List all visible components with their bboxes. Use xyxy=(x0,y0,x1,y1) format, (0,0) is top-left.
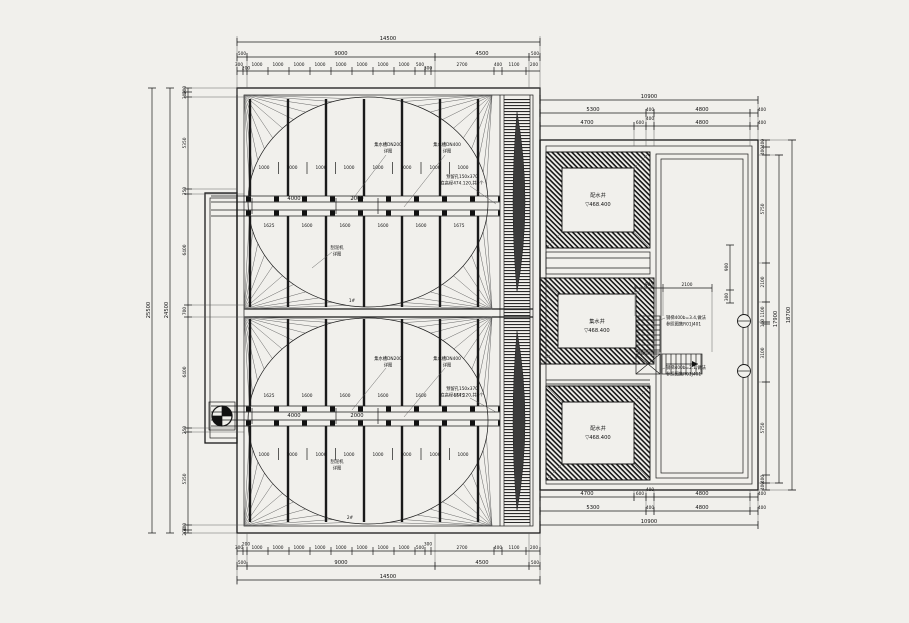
dim-label: 5750 xyxy=(760,203,766,214)
dim-label: 1600 xyxy=(302,223,313,229)
dim-label: 1000 xyxy=(316,452,327,458)
dim-label: 4000 xyxy=(287,196,300,202)
dim-label: 1000 xyxy=(294,62,305,68)
tank-tag: 2# xyxy=(347,515,354,521)
dim-label: 10900 xyxy=(641,519,658,525)
dim-label: 1000 xyxy=(401,452,412,458)
dim-label: 1000 xyxy=(287,165,298,171)
dim-label: 2100 xyxy=(682,282,693,288)
dims-right-bottom: 4700 600 400 4800 400 5300 400 4800 400 … xyxy=(540,487,766,529)
annotation: 刮泥机 xyxy=(331,458,345,465)
dims-right-side: 400 400 5750 2100 1100 100 3100 5750 400… xyxy=(758,139,796,490)
dim-label: 4500 xyxy=(475,560,488,566)
dim-label: 1000 xyxy=(430,452,441,458)
dim-label: 1600 xyxy=(340,393,351,399)
collector-channel xyxy=(500,95,530,526)
dim-label: 400 xyxy=(494,545,502,551)
outer-wall xyxy=(237,88,540,533)
dim-label: 4000 xyxy=(287,413,300,419)
cad-plan-screenshot: 14500 500 9000 4500 500 300 200 1000 100… xyxy=(0,0,909,623)
dim-label: 4700 xyxy=(580,120,593,126)
stair-note: 钢梯400b=2.1,做法 xyxy=(666,364,707,371)
dim-label: 5300 xyxy=(586,107,599,113)
dim-label: 1600 xyxy=(416,223,427,229)
tank-2-shell xyxy=(248,318,488,524)
dim-label: 4500 xyxy=(475,51,488,57)
water-level: ▽468.400 xyxy=(584,328,609,334)
dim-label: 6400 xyxy=(182,366,188,377)
dim-label: 300 xyxy=(424,66,432,72)
annotation: 集水槽DN400 xyxy=(433,141,461,148)
fan-hatch xyxy=(244,437,347,526)
dim-label: 400 xyxy=(760,475,766,483)
dims-left: 25500 24500 200 300 5350 250 6400 700 64… xyxy=(146,86,244,536)
dim-label: 700 xyxy=(182,307,188,315)
annotation: 详图 xyxy=(333,251,342,258)
dim-label: 1000 xyxy=(458,452,469,458)
dim-label: 1000 xyxy=(252,545,263,551)
annotation: 详图 xyxy=(384,362,393,369)
dim-label: 2700 xyxy=(457,545,468,551)
fan-hatch xyxy=(244,219,347,309)
plan-drawing: 14500 500 9000 4500 500 300 200 1000 100… xyxy=(0,0,909,623)
stair-note: 参照图集R01J401 xyxy=(666,321,701,328)
dim-label: 400 xyxy=(758,491,766,497)
dim-label: 1000 xyxy=(378,62,389,68)
dim-label: 2000 xyxy=(350,413,363,419)
dim-label: 1000 xyxy=(336,545,347,551)
dim-label: 1000 xyxy=(294,545,305,551)
dim-label: 1000 xyxy=(430,165,441,171)
dim-label: 1000 xyxy=(273,545,284,551)
dim-label: 400 xyxy=(758,505,766,511)
valve-quadrant xyxy=(222,406,232,416)
dim-label: 1000 xyxy=(315,62,326,68)
dims-top: 14500 500 9000 4500 500 300 200 1000 100… xyxy=(235,36,540,95)
dim-label: 600 xyxy=(636,120,644,126)
dim-label: 1100 xyxy=(509,62,520,68)
tank-2-dividers-bottom xyxy=(250,426,478,522)
dim-label: 400 xyxy=(646,487,654,493)
dim-label: 400 xyxy=(646,505,654,511)
annotation: 详图 xyxy=(443,362,452,369)
annotation: 底高程474.120,共6个 xyxy=(440,392,484,399)
dim-label: 300 xyxy=(182,91,188,99)
annotation: 集水槽DN200 xyxy=(374,355,402,362)
dim-label: 18700 xyxy=(786,307,792,324)
dim-label: 4800 xyxy=(695,107,708,113)
annex xyxy=(205,193,244,443)
dim-label: 600 xyxy=(636,491,644,497)
dim-label: 1100 xyxy=(760,306,766,317)
well-structure xyxy=(540,140,758,490)
dim-label: 400 xyxy=(646,116,654,122)
dim-label: 1000 xyxy=(273,62,284,68)
dim-label: 4800 xyxy=(695,491,708,497)
dim-label: 14500 xyxy=(380,574,397,580)
dim-label: 1000 xyxy=(287,452,298,458)
dim-label: 1000 xyxy=(259,165,270,171)
dim-label: 2100 xyxy=(760,276,766,287)
annotation: 底高程474.120,共6个 xyxy=(440,180,484,187)
dim-label: 1000 xyxy=(458,165,469,171)
dim-label: 1600 xyxy=(340,223,351,229)
dim-label: 1600 xyxy=(378,393,389,399)
dim-label: 500 xyxy=(238,560,246,566)
chamber-bottom-walls xyxy=(546,386,650,480)
dim-label: 1000 xyxy=(401,165,412,171)
annotation: 详图 xyxy=(333,465,342,472)
water-level: ▽468.400 xyxy=(585,435,610,441)
dim-label: 200 xyxy=(242,66,250,72)
mid-wall xyxy=(244,309,533,317)
dim-label: 400 xyxy=(646,107,654,113)
dim-label: 2700 xyxy=(457,62,468,68)
dim-label: 250 xyxy=(182,187,188,195)
dim-label: 1000 xyxy=(399,62,410,68)
dim-label: 25500 xyxy=(146,302,152,319)
dim-label: 1000 xyxy=(373,452,384,458)
tank-1-walkway xyxy=(244,196,500,216)
dim-label: 4800 xyxy=(695,505,708,511)
dim-label: 100 xyxy=(760,319,766,327)
dim-label: 400 xyxy=(760,147,766,155)
dim-label: 500 xyxy=(531,51,539,57)
water-level: ▽468.400 xyxy=(585,202,610,208)
corridor xyxy=(546,252,650,274)
tank-tag: 1# xyxy=(349,298,356,304)
dim-label: 200 xyxy=(242,542,250,548)
dim-label: 9000 xyxy=(334,560,347,566)
dim-label: 500 xyxy=(531,560,539,566)
dim-label: 1000 xyxy=(316,165,327,171)
dim-label: 900 xyxy=(645,282,653,288)
dim-label: 1600 xyxy=(416,393,427,399)
dim-label: 9000 xyxy=(334,51,347,57)
dim-label: 5350 xyxy=(182,137,188,148)
dim-label: 1000 xyxy=(259,452,270,458)
dim-label: 1000 xyxy=(373,165,384,171)
dim-label: 1000 xyxy=(344,165,355,171)
dim-label: 400 xyxy=(758,120,766,126)
dim-label: 5350 xyxy=(182,473,188,484)
dim-label: 400 xyxy=(494,62,502,68)
dim-label: 5300 xyxy=(586,505,599,511)
dim-label: 1000 xyxy=(336,62,347,68)
dim-label: 1600 xyxy=(302,393,313,399)
dim-label: 4700 xyxy=(580,491,593,497)
tank-structure xyxy=(205,88,540,533)
dim-label: 5750 xyxy=(760,422,766,433)
dim-label: 1625 xyxy=(264,223,275,229)
dim-label: 300 xyxy=(424,542,432,548)
dim-label: 400 xyxy=(758,107,766,113)
dim-label: 3100 xyxy=(760,347,766,358)
dim-label: 1000 xyxy=(378,545,389,551)
dim-label: 6400 xyxy=(182,244,188,255)
dim-label: 250 xyxy=(182,426,188,434)
chamber-name: 集水井 xyxy=(589,317,605,325)
dim-label: 300 xyxy=(724,293,730,301)
chamber-labels: 配水井 ▽468.400 集水井 ▽468.400 配水井 ▽468.400 xyxy=(584,191,610,441)
dim-label: 2000 xyxy=(350,196,363,202)
annotation: 详图 xyxy=(443,148,452,155)
chamber-name: 配水井 xyxy=(590,424,606,432)
chamber-top-walls xyxy=(546,152,650,248)
dim-label: 14500 xyxy=(380,36,397,42)
dim-label: 24500 xyxy=(164,302,170,319)
annotation: 集水槽DN400 xyxy=(433,355,461,362)
dim-label: 1100 xyxy=(509,545,520,551)
fan-hatch xyxy=(244,95,347,185)
dim-label: 400 xyxy=(760,482,766,490)
dim-label: 1000 xyxy=(344,452,355,458)
annotation: 预留孔150x370 xyxy=(446,173,478,180)
dim-label: 900 xyxy=(724,263,730,271)
stair-note: 参照图集R01J401 xyxy=(666,371,701,378)
dim-label: 17900 xyxy=(773,311,779,328)
dim-label: 1600 xyxy=(378,223,389,229)
fan-hatch xyxy=(244,317,347,405)
tank-2-walkway xyxy=(244,406,500,426)
dim-label: 200 xyxy=(530,62,538,68)
annotation: 刮泥机 xyxy=(331,244,345,251)
dim-label: 4800 xyxy=(695,120,708,126)
annotation: 集水槽DN200 xyxy=(374,141,402,148)
dim-label: 1000 xyxy=(357,62,368,68)
dim-label: 1675 xyxy=(454,223,465,229)
dims-right-top: 10900 5300 400 4800 400 4700 600 400 480… xyxy=(540,94,766,146)
dim-label: 1000 xyxy=(252,62,263,68)
dim-label: 1625 xyxy=(264,393,275,399)
dim-label: 400 xyxy=(760,139,766,147)
dim-label: 10900 xyxy=(641,94,658,100)
stair-note: 钢梯400b=3.4,做法 xyxy=(666,314,707,321)
dim-label: 200 xyxy=(182,527,188,535)
dim-label: 1000 xyxy=(315,545,326,551)
annotation: 详图 xyxy=(384,148,393,155)
tank-1-dividers-bottom xyxy=(250,216,478,307)
dim-label: 1000 xyxy=(399,545,410,551)
annotation: 预留孔150x370 xyxy=(446,385,478,392)
dim-label: 200 xyxy=(530,545,538,551)
chamber-name: 配水井 xyxy=(590,191,606,199)
dim-label: 500 xyxy=(238,51,246,57)
dims-bottom: 300 200 1000 1000 1000 1000 1000 1000 10… xyxy=(235,533,540,585)
valve-quadrant xyxy=(212,416,222,426)
dim-label: 1000 xyxy=(357,545,368,551)
